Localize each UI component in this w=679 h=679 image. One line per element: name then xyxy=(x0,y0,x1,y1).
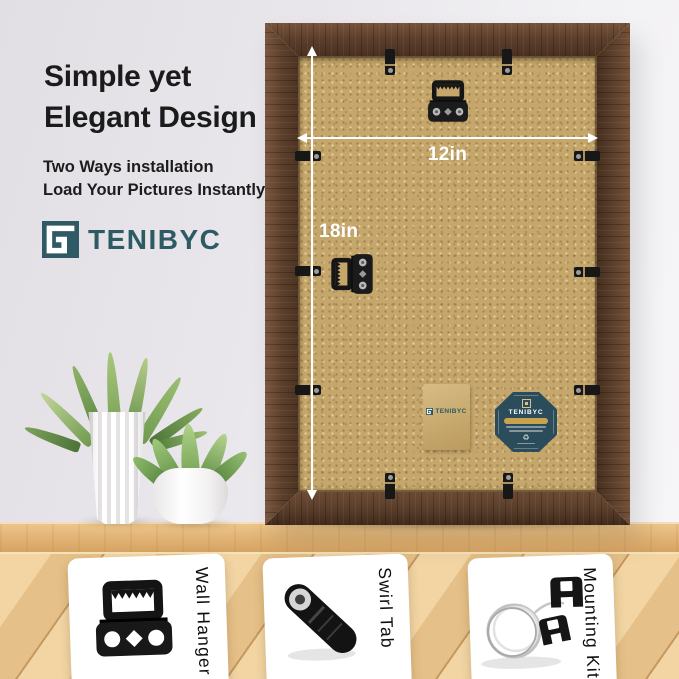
brand-logo: TENIBYC xyxy=(42,221,221,258)
wall-hanger-icon xyxy=(86,577,181,666)
badge-gold-banner xyxy=(504,418,548,424)
callout-label: Swirl Tab xyxy=(374,567,398,649)
swivel-tab xyxy=(574,385,600,395)
frame-border-bottom xyxy=(265,492,630,525)
brand-logo-icon xyxy=(42,221,79,258)
recycle-icon: ♻ xyxy=(522,433,529,442)
callout-card-mounting-kit: Mounting Kit xyxy=(467,554,617,679)
sawtooth-hanger-icon xyxy=(425,78,471,124)
brand-paper-tag: TENIBYC xyxy=(423,384,470,450)
brand-badge: TENIBYC ♻ xyxy=(495,392,557,452)
side-sawtooth-hanger-icon xyxy=(329,251,375,297)
callout-label: Wall Hanger xyxy=(191,567,216,677)
badge-fine-print-line xyxy=(517,443,535,445)
height-dimension-arrow xyxy=(311,50,313,496)
swivel-tab xyxy=(385,49,395,75)
swivel-tab xyxy=(295,266,321,276)
subtitle-line-2: Load Your Pictures Instantly xyxy=(43,179,265,202)
width-dimension-arrow xyxy=(301,137,594,139)
frame-border-top xyxy=(265,23,630,56)
badge-logo-icon xyxy=(522,399,531,408)
mounting-kit-icon xyxy=(470,570,591,674)
tag-brand-text: TENIBYC xyxy=(435,408,466,415)
callout-label: Mounting Kit xyxy=(579,567,604,679)
swivel-tab xyxy=(574,267,600,277)
subtitle: Two Ways installation Load Your Pictures… xyxy=(43,156,265,202)
frame-border-right xyxy=(597,23,630,525)
callout-card-swirl-tab: Swirl Tab xyxy=(262,554,412,679)
title-line-2: Elegant Design xyxy=(44,97,257,138)
swivel-tab xyxy=(502,49,512,75)
page-title: Simple yet Elegant Design xyxy=(44,56,257,138)
badge-fine-print-line xyxy=(506,426,546,428)
picture-frame-back: 12in 18in TENIBYC TENIBYC ♻ xyxy=(265,23,630,525)
round-plant-pot xyxy=(152,468,228,524)
product-infographic: Simple yet Elegant Design Two Ways insta… xyxy=(0,0,679,679)
badge-fine-print-line xyxy=(509,430,543,432)
brand-wordmark: TENIBYC xyxy=(88,224,221,256)
badge-brand-text: TENIBYC xyxy=(509,409,544,416)
swivel-tab xyxy=(503,473,513,499)
swirl-tab-icon xyxy=(267,565,376,674)
swivel-tab xyxy=(385,473,395,499)
height-dimension-label: 18in xyxy=(319,221,358,243)
frame-border-left xyxy=(265,23,298,525)
swivel-tab xyxy=(295,385,321,395)
title-line-1: Simple yet xyxy=(44,56,257,97)
width-dimension-label: 12in xyxy=(301,144,594,166)
brand-logo-icon xyxy=(426,408,433,415)
subtitle-line-1: Two Ways installation xyxy=(43,156,265,179)
callout-card-wall-hanger: Wall Hanger xyxy=(67,553,229,679)
